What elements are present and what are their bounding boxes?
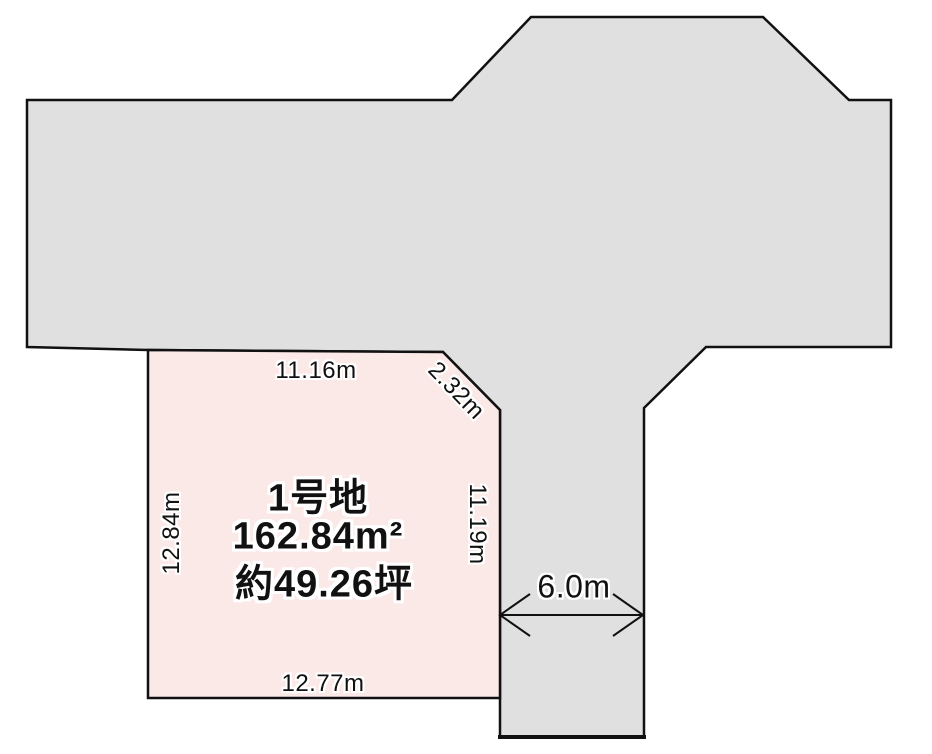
dimension-bottom-label: 12.77m [281, 670, 364, 698]
land-plot-diagram: 1号地 162.84m² 約49.26坪 11.16m 2.32m 12.84m… [0, 0, 932, 754]
dimension-top-label: 11.16m [275, 357, 356, 385]
dimension-right-label: 11.19m [463, 483, 491, 564]
plot-area-tsubo-label: 約49.26坪 [235, 553, 413, 608]
road-width-label: 6.0m [537, 569, 610, 606]
plot-map-canvas [0, 0, 932, 754]
dimension-left-label: 12.84m [158, 491, 186, 574]
plot-name-label: 1号地 [268, 467, 368, 522]
